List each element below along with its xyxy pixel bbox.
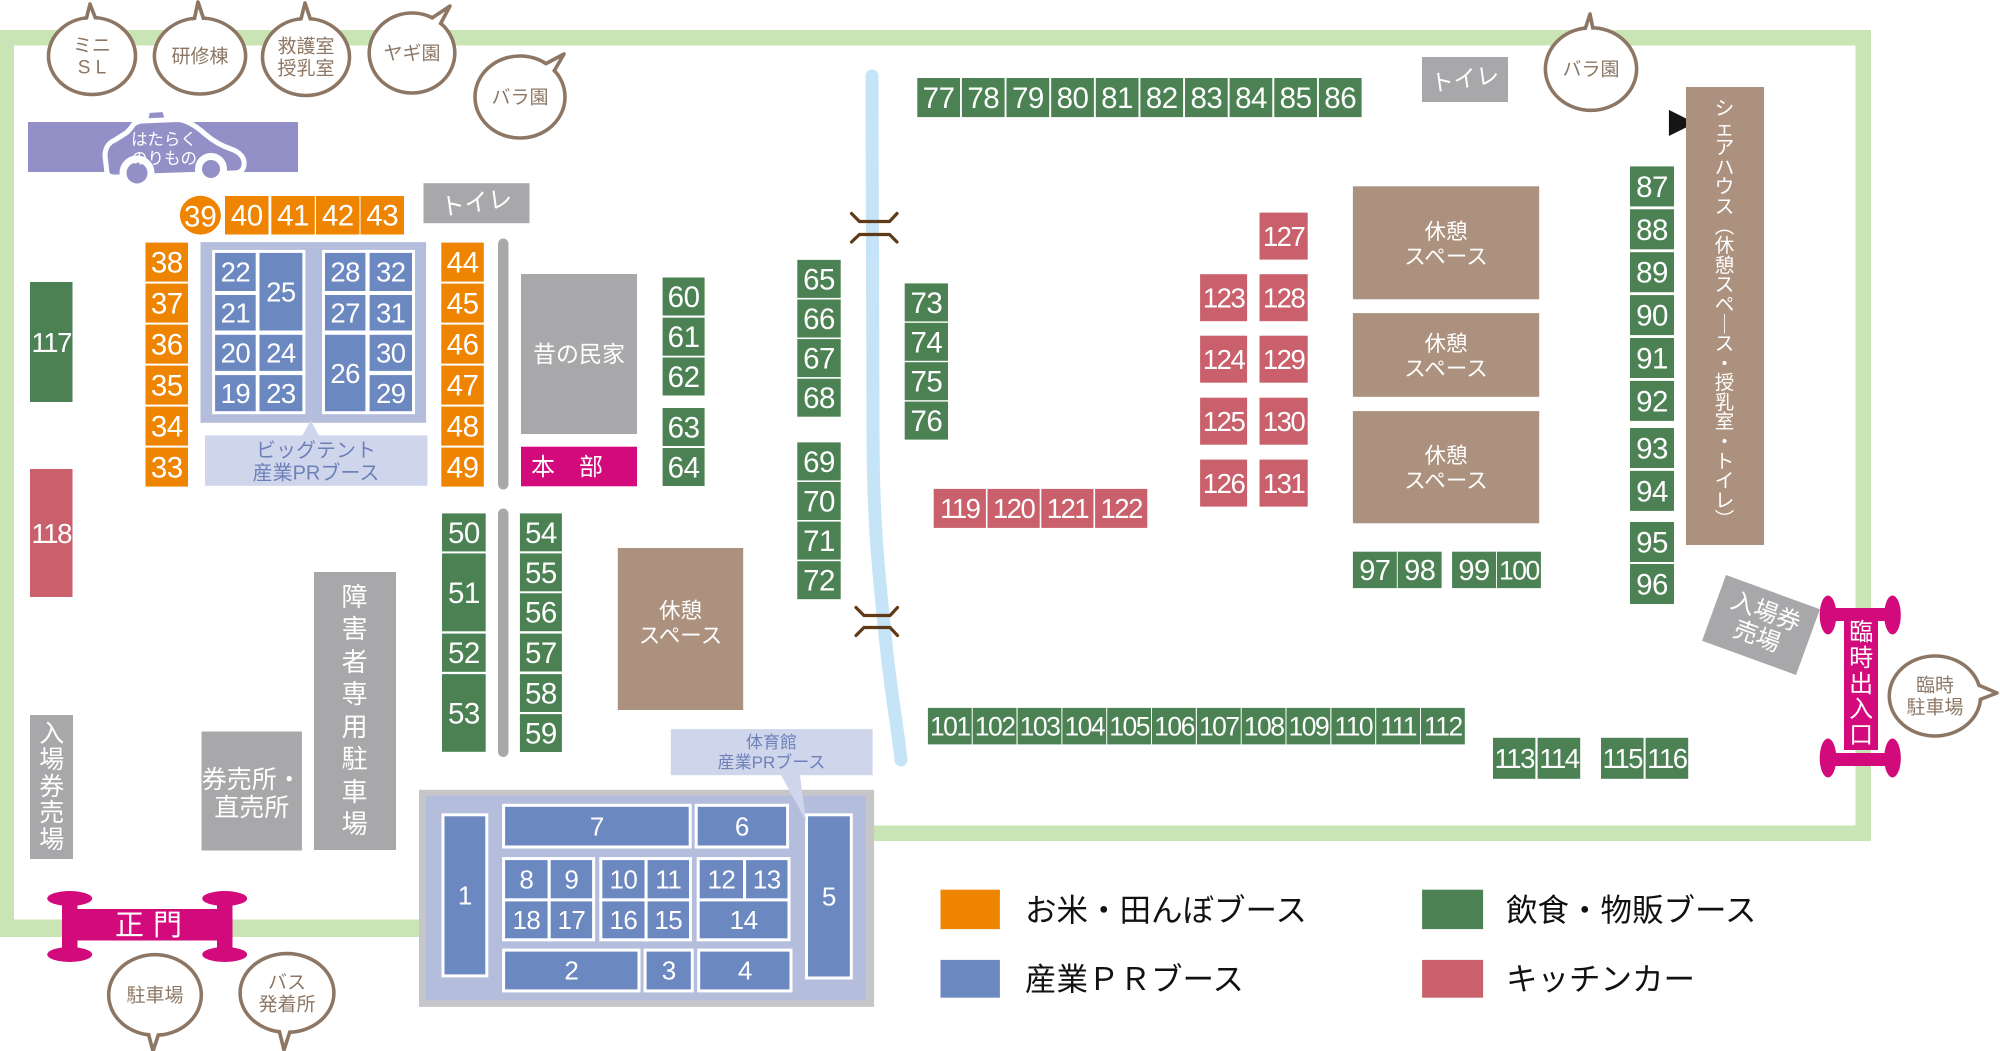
- svg-text:40: 40: [231, 200, 263, 233]
- svg-text:111: 111: [1380, 712, 1417, 742]
- svg-text:30: 30: [376, 338, 406, 369]
- svg-text:産業ＰＲブース: 産業ＰＲブース: [1025, 961, 1244, 997]
- svg-text:119: 119: [940, 493, 980, 524]
- svg-text:109: 109: [1289, 712, 1329, 742]
- svg-text:104: 104: [1064, 712, 1104, 742]
- svg-text:112: 112: [1424, 712, 1463, 742]
- svg-text:13: 13: [753, 865, 781, 895]
- svg-text:67: 67: [803, 343, 835, 376]
- svg-text:37: 37: [151, 288, 183, 321]
- svg-text:24: 24: [266, 338, 296, 369]
- svg-text:休憩: 休憩: [659, 599, 702, 623]
- svg-text:のりもの: のりもの: [131, 149, 197, 168]
- svg-text:61: 61: [668, 321, 700, 354]
- svg-text:113: 113: [1495, 743, 1536, 774]
- svg-text:49: 49: [447, 452, 479, 485]
- svg-text:75: 75: [910, 366, 942, 399]
- svg-text:62: 62: [668, 361, 700, 394]
- svg-text:130: 130: [1263, 406, 1306, 437]
- svg-text:73: 73: [910, 287, 942, 320]
- svg-text:44: 44: [447, 247, 479, 280]
- svg-text:118: 118: [32, 518, 73, 549]
- svg-text:68: 68: [803, 382, 835, 415]
- svg-text:43: 43: [366, 200, 398, 233]
- svg-text:127: 127: [1263, 221, 1305, 252]
- svg-text:54: 54: [525, 517, 557, 550]
- svg-text:96: 96: [1636, 569, 1668, 602]
- svg-text:バラ園: バラ園: [491, 88, 548, 109]
- svg-text:駐車場: 駐車場: [126, 985, 183, 1007]
- svg-text:スペース: スペース: [639, 624, 722, 648]
- svg-text:108: 108: [1244, 712, 1284, 742]
- svg-text:27: 27: [330, 298, 360, 329]
- svg-text:129: 129: [1263, 344, 1305, 375]
- svg-text:17: 17: [557, 905, 585, 935]
- svg-text:47: 47: [447, 370, 479, 403]
- svg-text:117: 117: [32, 327, 72, 358]
- svg-text:ビッグテント: ビッグテント: [256, 439, 376, 462]
- svg-text:15: 15: [654, 905, 682, 935]
- svg-text:80: 80: [1057, 82, 1089, 115]
- svg-text:122: 122: [1101, 493, 1143, 524]
- svg-text:55: 55: [525, 557, 557, 590]
- svg-text:お米・田んぼブース: お米・田んぼブース: [1025, 892, 1307, 928]
- svg-text:36: 36: [151, 329, 183, 362]
- svg-text:101: 101: [930, 712, 970, 742]
- svg-text:8: 8: [519, 865, 533, 895]
- svg-text:7: 7: [590, 811, 604, 841]
- svg-text:98: 98: [1404, 555, 1435, 587]
- svg-text:3: 3: [662, 956, 676, 986]
- svg-text:82: 82: [1146, 82, 1178, 115]
- svg-text:バラ園: バラ園: [1562, 60, 1619, 81]
- svg-text:115: 115: [1603, 743, 1644, 774]
- svg-text:53: 53: [448, 697, 480, 730]
- svg-text:59: 59: [525, 718, 557, 751]
- svg-text:産業PRブース: 産業PRブース: [253, 461, 380, 485]
- svg-text:58: 58: [525, 678, 557, 711]
- svg-text:76: 76: [910, 405, 942, 438]
- svg-text:25: 25: [266, 277, 296, 308]
- svg-text:79: 79: [1012, 82, 1044, 115]
- svg-text:ヤギ園: ヤギ園: [383, 43, 440, 65]
- svg-text:85: 85: [1280, 82, 1312, 115]
- svg-text:ミニ: ミニ: [73, 36, 111, 57]
- svg-text:121: 121: [1047, 493, 1089, 524]
- svg-text:125: 125: [1203, 406, 1246, 437]
- svg-text:4: 4: [738, 956, 752, 986]
- svg-text:29: 29: [376, 378, 406, 409]
- svg-text:スペース: スペース: [1404, 245, 1487, 269]
- svg-text:81: 81: [1101, 82, 1133, 115]
- svg-text:33: 33: [151, 452, 183, 485]
- svg-text:発着所: 発着所: [258, 994, 315, 1016]
- svg-text:116: 116: [1647, 743, 1688, 774]
- svg-text:69: 69: [803, 446, 835, 479]
- svg-text:休憩: 休憩: [1424, 444, 1467, 468]
- svg-text:19: 19: [221, 378, 251, 409]
- svg-text:バス: バス: [268, 973, 306, 994]
- svg-text:60: 60: [668, 281, 700, 314]
- svg-text:128: 128: [1263, 283, 1306, 314]
- svg-text:11: 11: [655, 865, 681, 895]
- svg-text:券売所・: 券売所・: [202, 766, 302, 794]
- svg-text:107: 107: [1199, 712, 1239, 742]
- svg-text:スペース: スペース: [1404, 469, 1487, 493]
- svg-text:77: 77: [923, 82, 955, 115]
- svg-text:28: 28: [330, 257, 360, 288]
- svg-text:103: 103: [1020, 712, 1060, 742]
- svg-text:93: 93: [1636, 433, 1668, 466]
- svg-text:105: 105: [1109, 712, 1149, 742]
- svg-text:正門: 正門: [115, 910, 191, 942]
- svg-text:飲食・物販ブース: 飲食・物販ブース: [1506, 892, 1756, 928]
- svg-text:22: 22: [221, 257, 251, 288]
- svg-text:114: 114: [1539, 743, 1580, 774]
- svg-text:52: 52: [448, 637, 480, 670]
- svg-text:45: 45: [447, 288, 479, 321]
- svg-text:124: 124: [1203, 344, 1246, 375]
- svg-text:26: 26: [330, 358, 360, 389]
- svg-text:1: 1: [458, 881, 472, 911]
- svg-text:100: 100: [1499, 555, 1539, 585]
- svg-text:2: 2: [564, 956, 578, 986]
- svg-text:31: 31: [376, 298, 406, 329]
- svg-text:48: 48: [447, 411, 479, 444]
- svg-text:72: 72: [803, 565, 835, 598]
- svg-text:71: 71: [803, 525, 835, 558]
- svg-text:70: 70: [803, 486, 835, 519]
- svg-text:102: 102: [975, 712, 1015, 742]
- svg-text:臨時: 臨時: [1916, 675, 1954, 697]
- svg-text:126: 126: [1203, 468, 1246, 499]
- svg-text:120: 120: [993, 493, 1036, 524]
- svg-text:94: 94: [1636, 475, 1668, 508]
- svg-text:87: 87: [1636, 171, 1668, 204]
- svg-text:78: 78: [967, 82, 999, 115]
- svg-text:16: 16: [609, 905, 637, 935]
- svg-text:86: 86: [1324, 82, 1356, 115]
- svg-text:本部: 本部: [531, 454, 627, 481]
- svg-text:S L: S L: [78, 58, 107, 79]
- svg-text:35: 35: [151, 370, 183, 403]
- svg-text:32: 32: [376, 257, 406, 288]
- svg-text:5: 5: [822, 882, 836, 912]
- svg-text:56: 56: [525, 597, 557, 630]
- svg-text:産業PRブース: 産業PRブース: [718, 752, 826, 772]
- svg-text:90: 90: [1636, 300, 1668, 333]
- svg-text:74: 74: [910, 326, 942, 359]
- svg-text:123: 123: [1203, 283, 1246, 314]
- svg-text:昔の民家: 昔の民家: [533, 341, 625, 367]
- svg-text:41: 41: [277, 200, 309, 233]
- svg-text:直売所: 直売所: [214, 794, 289, 822]
- svg-text:9: 9: [564, 865, 578, 895]
- svg-text:92: 92: [1636, 385, 1668, 418]
- svg-text:12: 12: [707, 865, 735, 895]
- svg-text:スペース: スペース: [1404, 357, 1487, 381]
- svg-text:休憩: 休憩: [1424, 220, 1467, 244]
- svg-text:106: 106: [1154, 712, 1194, 742]
- svg-text:研修棟: 研修棟: [171, 46, 228, 68]
- svg-text:授乳室: 授乳室: [277, 58, 334, 80]
- svg-text:131: 131: [1263, 468, 1305, 499]
- svg-text:18: 18: [512, 905, 540, 935]
- svg-text:51: 51: [448, 577, 480, 610]
- svg-text:はたらく: はたらく: [131, 130, 197, 149]
- svg-text:97: 97: [1359, 555, 1390, 587]
- svg-text:64: 64: [668, 452, 700, 485]
- svg-text:駐車場: 駐車場: [1906, 697, 1963, 719]
- svg-text:46: 46: [447, 329, 479, 362]
- svg-text:キッチンカー: キッチンカー: [1506, 961, 1695, 997]
- svg-text:14: 14: [730, 905, 758, 935]
- svg-text:34: 34: [151, 411, 183, 444]
- svg-text:42: 42: [322, 200, 354, 233]
- svg-text:休憩: 休憩: [1424, 332, 1467, 356]
- svg-text:110: 110: [1334, 712, 1373, 742]
- svg-text:95: 95: [1636, 527, 1668, 560]
- svg-text:83: 83: [1190, 82, 1222, 115]
- svg-text:23: 23: [266, 378, 296, 409]
- svg-text:91: 91: [1636, 343, 1668, 376]
- svg-text:20: 20: [221, 338, 251, 369]
- svg-text:99: 99: [1458, 555, 1489, 587]
- svg-text:6: 6: [735, 811, 749, 841]
- svg-text:57: 57: [525, 637, 557, 670]
- svg-text:65: 65: [803, 263, 835, 296]
- svg-text:救護室: 救護室: [277, 36, 334, 58]
- svg-text:39: 39: [184, 200, 217, 233]
- svg-text:50: 50: [448, 517, 480, 550]
- svg-text:66: 66: [803, 303, 835, 336]
- svg-text:84: 84: [1235, 82, 1267, 115]
- svg-text:体育館: 体育館: [746, 733, 797, 752]
- svg-text:88: 88: [1636, 214, 1668, 247]
- svg-text:63: 63: [668, 412, 700, 445]
- svg-text:21: 21: [221, 298, 251, 329]
- svg-text:10: 10: [609, 865, 637, 895]
- svg-text:38: 38: [151, 247, 183, 280]
- svg-text:89: 89: [1636, 257, 1668, 290]
